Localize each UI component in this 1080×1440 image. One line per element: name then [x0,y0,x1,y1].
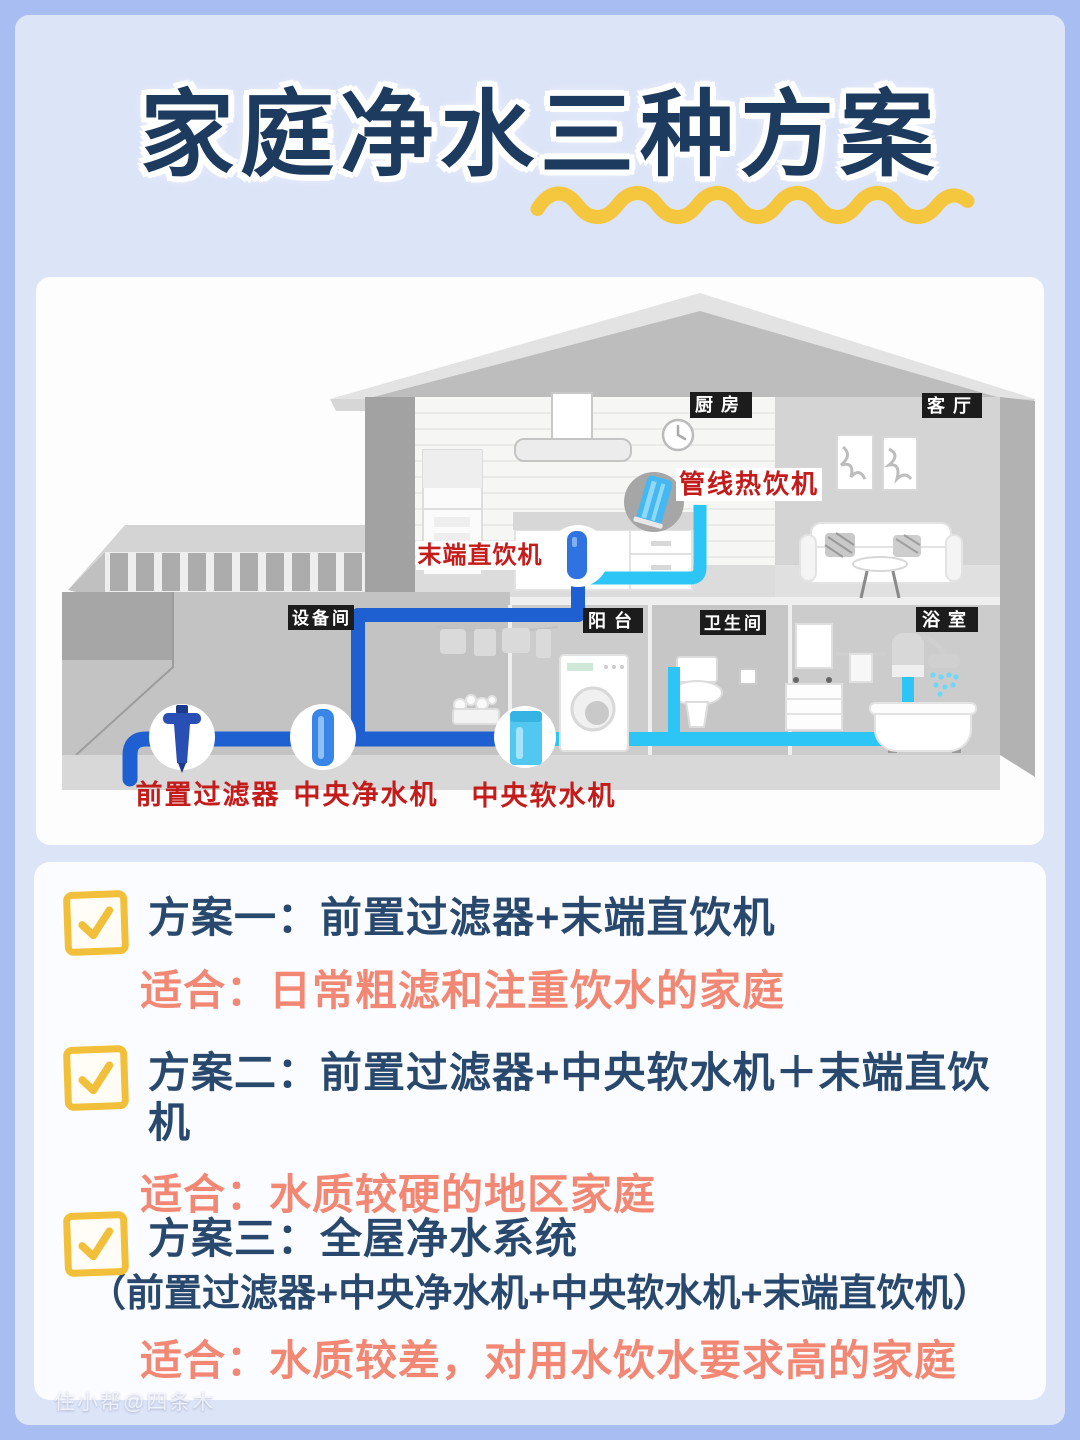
washing-machine [560,655,628,751]
central-softener-device [494,706,556,768]
central-purifier-device [290,704,356,770]
wall-picture [883,437,917,490]
pipeline-hot-dispenser-device [624,472,684,532]
water-heater [892,633,924,677]
house-diagram-card: 厨房 客厅 设备间 阳台 卫生间 浴室 管线热饮机 末端直饮机 前置过滤器 中央… [36,277,1044,845]
plan-1: 方案一：前置过滤器+末端直饮机 适合：日常粗滤和注重饮水的家庭 [64,889,1024,1018]
infographic-page: { "header": { "title": "家庭净水三种方案" }, "di… [0,0,1080,1440]
bathtub [870,703,976,753]
hood-duct [552,393,592,439]
watermark: 住小帮@四条木 [54,1386,215,1416]
check-icon [72,1220,120,1268]
plan-3-fit: 适合：水质较差，对用水饮水要求高的家庭 [140,1327,1024,1388]
terminal-drinking-machine-device [547,525,609,587]
plan-2-title: 方案二：前置过滤器+中央软水机＋末端直饮机 [148,1044,1024,1147]
checkbox-icon [63,1045,129,1111]
central-purifier-label: 中央净水机 [294,780,439,811]
page-title: 家庭净水三种方案 [15,59,1065,195]
kitchen-label: 厨房 [695,394,747,415]
towel [850,654,872,682]
plan-1-fit: 适合：日常粗滤和注重饮水的家庭 [140,957,1024,1018]
plan-2: 方案二：前置过滤器+中央软水机＋末端直饮机 适合：水质较硬的地区家庭 [64,1044,1024,1222]
terminal-drinking-machine-label: 末端直饮机 [418,540,543,569]
toilet-label: 卫生间 [704,613,764,633]
mirror [796,624,832,668]
vanity [786,677,842,730]
check-icon [72,899,120,947]
check-icon [72,1054,120,1102]
plan-3: 方案三：全屋净水系统 （前置过滤器+中央净水机+中央软水机+末端直饮机） 适合：… [64,1210,1024,1388]
bathroom-label: 浴室 [922,609,974,630]
laundry-basin [453,695,499,724]
balcony-label: 阳台 [588,610,640,631]
utility-room-label: 设备间 [292,608,352,628]
carport-roof [68,525,365,592]
plan-1-title: 方案一：前置过滤器+末端直饮机 [148,889,1024,943]
checkbox-icon [63,890,129,956]
central-softener-label: 中央软水机 [472,781,617,812]
house-cross-section-diagram: 厨房 客厅 设备间 阳台 卫生间 浴室 管线热饮机 末端直饮机 前置过滤器 中央… [36,277,1044,845]
plans-panel: 方案一：前置过滤器+末端直饮机 适合：日常粗滤和注重饮水的家庭 方案二：前置过滤… [34,862,1046,1400]
toilet-tank [677,657,717,682]
inner-panel: 家庭净水三种方案 [15,15,1065,1425]
plan-3-subtitle: （前置过滤器+中央净水机+中央软水机+末端直饮机） [88,1272,1024,1318]
pre-filter-label: 前置过滤器 [136,779,281,811]
squiggle-underline-icon [527,183,982,227]
plan-3-title: 方案三：全屋净水系统 [148,1210,1024,1264]
range-hood [515,439,631,461]
sofa [800,523,962,583]
toilet-paper-holder [740,669,756,684]
living-room-label: 客厅 [927,395,979,416]
checkbox-icon [63,1211,129,1277]
pipeline-hot-dispenser-label: 管线热饮机 [679,470,819,500]
